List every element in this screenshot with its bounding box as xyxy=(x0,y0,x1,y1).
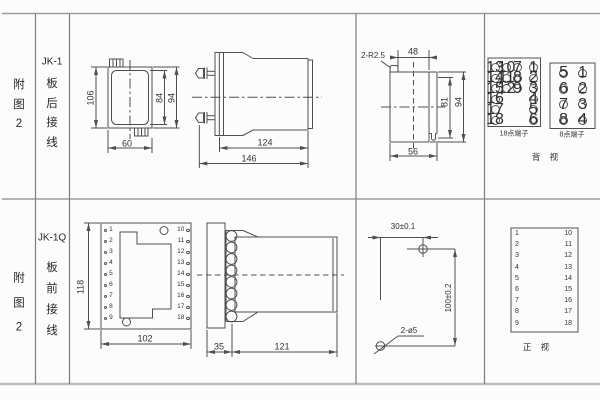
front-view-label: 正 视 xyxy=(523,343,549,352)
terminal-number: 13 xyxy=(548,262,572,273)
terminal-circle: 12 xyxy=(502,84,511,93)
terminal-circle: 6 xyxy=(529,116,538,125)
terminal-pin: 18 xyxy=(174,313,190,324)
terminal18-col3: 789 xyxy=(513,63,522,95)
terminal-pin: 7 xyxy=(104,291,120,302)
terminal-circle: 9 xyxy=(513,84,522,93)
jk1-side-view-drawing xyxy=(192,53,322,169)
fig-label-top: 附图2 xyxy=(12,76,26,135)
rear-view-label: 背 视 xyxy=(532,152,558,161)
terminal-circle: 5 xyxy=(559,69,569,79)
terminal8-label: 8点端子 xyxy=(560,131,585,138)
model-label-jk1q: JK-1Q xyxy=(38,233,66,244)
terminal-pin: 2 xyxy=(104,236,120,247)
terminal-circle: 1 xyxy=(578,69,588,79)
jk1q-drilling-plan-drawing xyxy=(368,238,455,355)
terminal-number: 18 xyxy=(548,318,572,329)
terminal-number: 16 xyxy=(548,295,572,306)
jk1q-side-view-drawing xyxy=(197,223,344,357)
terminal-pin: 11 xyxy=(174,236,190,247)
dim-106-label: 106 xyxy=(86,90,95,105)
dim-60-label: 60 xyxy=(122,139,132,148)
terminal-pin: 5 xyxy=(104,269,120,280)
terminal-number: 9 xyxy=(515,318,519,329)
wiring-label-front: 板前接线 xyxy=(45,258,59,342)
terminal-pin: 17 xyxy=(174,302,190,313)
dim-35-label: 35 xyxy=(214,343,224,352)
note-2xd5-label: 2-ø5 xyxy=(401,327,417,335)
terminal-number: 6 xyxy=(515,284,519,295)
dim-84-label: 84 xyxy=(155,92,164,102)
terminal-pin: 1 xyxy=(104,225,120,236)
terminal-number: 15 xyxy=(548,284,572,295)
terminal-number: 10 xyxy=(548,228,572,239)
terminal-circle: 6 xyxy=(559,84,569,94)
terminal18-col2: 101112 xyxy=(502,63,511,95)
terminal-number: 8 xyxy=(515,306,519,317)
terminal-table-right: 101112131415161718 xyxy=(548,228,572,329)
terminal-number: 7 xyxy=(515,295,519,306)
terminal-circle: 2 xyxy=(578,84,588,94)
terminal-pin: 9 xyxy=(104,313,120,324)
dim-100-label: 100±0.2 xyxy=(445,283,453,312)
dim-81-label: 81 xyxy=(441,96,450,106)
terminal-pin: 10 xyxy=(174,225,190,236)
terminal-pin: 15 xyxy=(174,280,190,291)
terminal-circle: 8 xyxy=(559,116,569,126)
terminal-pin: 13 xyxy=(174,258,190,269)
terminal-number: 12 xyxy=(548,250,572,261)
terminal-number: 4 xyxy=(515,262,519,273)
terminal-number: 17 xyxy=(548,306,572,317)
terminal-pin: 8 xyxy=(104,302,120,313)
dim-118-label: 118 xyxy=(76,280,85,294)
terminal-number: 2 xyxy=(515,239,519,250)
jk1-front-view-drawing xyxy=(91,59,180,153)
dim-124-label: 124 xyxy=(257,138,272,147)
terminal-circle: 18 xyxy=(491,116,500,125)
terminal-pin: 3 xyxy=(104,247,120,258)
fig-label-bottom: 附图2 xyxy=(12,266,26,340)
dim-56-label: 56 xyxy=(408,147,418,156)
terminal-number: 1 xyxy=(515,228,519,239)
dim-48-label: 48 xyxy=(408,48,418,57)
wiring-label-rear: 板后接线 xyxy=(45,75,59,153)
terminal-pin: 14 xyxy=(174,269,190,280)
terminal-number: 3 xyxy=(515,250,519,261)
terminal-pin: 12 xyxy=(174,247,190,258)
figure-sheet: 附图2 JK-1 板后接线 附图2 JK-1Q 板前接线 106 84 94 6… xyxy=(0,0,600,400)
jk1q-right-terminals: 101112131415161718 xyxy=(174,225,190,324)
terminal-circle: 3 xyxy=(578,100,588,110)
terminal18-label: 18点端子 xyxy=(500,131,529,138)
note-r2.5-label: 2-R2.5 xyxy=(361,52,385,60)
terminal18-col4: 123456 xyxy=(529,63,538,127)
dim-102-label: 102 xyxy=(137,334,152,343)
terminal-number: 14 xyxy=(548,273,572,284)
terminal8-col1: 5678 xyxy=(559,69,569,132)
dim-121-label: 121 xyxy=(274,343,289,352)
dim-94-label: 94 xyxy=(168,92,177,102)
terminal8-col2: 1234 xyxy=(578,69,588,132)
terminal-pin: 6 xyxy=(104,280,120,291)
terminal-number: 5 xyxy=(515,273,519,284)
terminal-circle: 4 xyxy=(578,116,588,126)
terminal-pin: 16 xyxy=(174,291,190,302)
terminal-table-left: 123456789 xyxy=(515,228,519,329)
terminal-circle: 7 xyxy=(559,100,569,110)
dim-146-label: 146 xyxy=(241,154,256,163)
dim-30-label: 30±0.1 xyxy=(391,223,415,231)
dim-94b-label: 94 xyxy=(455,97,464,107)
jk1q-left-terminals: 123456789 xyxy=(104,225,120,324)
model-label-jk1: JK-1 xyxy=(42,57,63,68)
terminal-number: 11 xyxy=(548,239,572,250)
terminal-pin: 4 xyxy=(104,258,120,269)
